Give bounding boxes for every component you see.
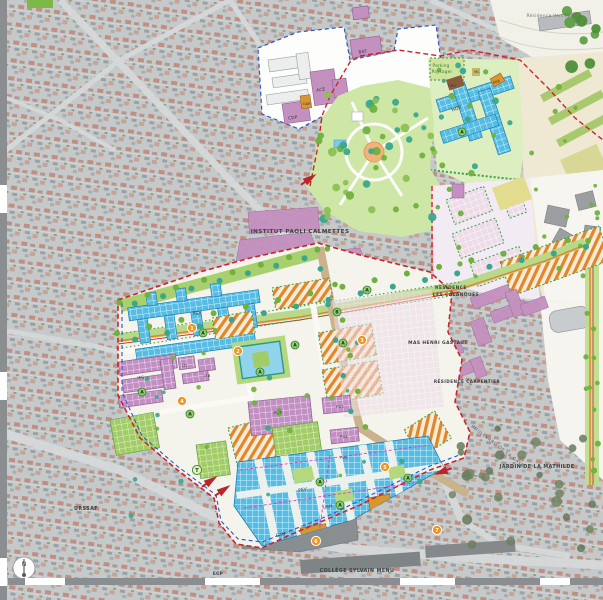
tree xyxy=(385,142,393,150)
tree xyxy=(534,188,538,192)
tree xyxy=(328,148,337,157)
tree xyxy=(404,271,410,277)
tree xyxy=(343,180,349,186)
tree xyxy=(346,191,354,199)
marker-letter-label-A-3: A xyxy=(365,288,369,294)
tree xyxy=(145,376,150,381)
tree xyxy=(273,263,279,269)
tree xyxy=(581,273,586,278)
marker-letter-label-A-11: A xyxy=(460,130,464,136)
tree xyxy=(368,148,374,154)
tree xyxy=(556,84,562,90)
tree xyxy=(392,99,399,106)
compass-north: N xyxy=(13,557,35,579)
tree xyxy=(380,134,386,140)
tree xyxy=(217,278,223,284)
tree xyxy=(155,413,160,418)
tree xyxy=(275,297,281,303)
label-bldg-chv: CHV xyxy=(448,84,456,88)
tree xyxy=(267,375,272,380)
tree xyxy=(589,203,594,208)
building-bat xyxy=(350,36,382,58)
tree xyxy=(204,445,209,450)
tree xyxy=(197,323,203,329)
tree xyxy=(595,210,601,216)
tree xyxy=(427,133,434,140)
tree xyxy=(188,286,194,292)
tree xyxy=(583,244,589,250)
tree xyxy=(591,457,595,461)
marker-letter-label-A-1: A xyxy=(293,343,297,349)
tree xyxy=(417,479,423,485)
tree xyxy=(332,184,340,192)
tree xyxy=(373,165,378,170)
tree xyxy=(363,180,371,188)
tree xyxy=(478,473,484,479)
label-bldg-pcp: PCP xyxy=(273,410,283,417)
tree xyxy=(563,513,570,520)
label-residence-les-calanques-2: LES CALANQUES xyxy=(433,292,479,298)
tree xyxy=(591,326,596,331)
tree xyxy=(346,347,351,352)
tree xyxy=(173,284,179,290)
tree xyxy=(201,351,205,355)
tree xyxy=(132,337,138,343)
tree xyxy=(588,500,596,508)
tree xyxy=(587,385,592,390)
tree xyxy=(592,408,596,412)
label-bldg-p05: P05 xyxy=(340,455,348,460)
map-svg: INSTITUT PAOLI CALMETTESRésidence Vert P… xyxy=(0,0,603,600)
marker-number-label-7: 7 xyxy=(435,528,439,534)
label-residence-vert-parc: Résidence Vert Parc xyxy=(526,12,575,19)
tree xyxy=(439,114,444,119)
tree xyxy=(162,390,166,394)
tree xyxy=(421,125,426,130)
tree xyxy=(491,133,496,138)
tree xyxy=(486,467,494,475)
tree xyxy=(266,493,270,497)
label-institut-paoli-calmettes: INSTITUT PAOLI CALMETTES xyxy=(251,229,350,235)
tree xyxy=(501,251,507,257)
tree xyxy=(456,245,461,250)
tree xyxy=(340,141,348,149)
tree xyxy=(449,491,456,498)
tree xyxy=(422,277,428,283)
tree xyxy=(406,136,412,142)
tree xyxy=(372,98,378,104)
tree xyxy=(436,205,441,210)
label-mas-henri-gastaut: MAS HENRI GASTAUT xyxy=(408,340,468,346)
label-bldg-p03: P03 xyxy=(336,404,344,409)
tree xyxy=(536,472,542,478)
tree xyxy=(447,187,452,192)
tree xyxy=(324,207,331,214)
tree xyxy=(324,91,331,98)
tree xyxy=(468,257,474,263)
tree xyxy=(213,328,218,333)
tree xyxy=(579,36,587,44)
label-parking-paysager-1: Parking xyxy=(433,63,450,68)
marker-letter-label-A-8: A xyxy=(318,480,322,486)
tree xyxy=(343,148,350,155)
marker-tram-label: T xyxy=(195,468,199,474)
marker-number-label-3: 3 xyxy=(360,338,364,344)
tree xyxy=(347,353,353,359)
tree xyxy=(164,330,170,336)
tree xyxy=(325,302,331,308)
tree xyxy=(556,266,561,271)
tree xyxy=(339,284,345,290)
tree xyxy=(474,274,478,278)
tree xyxy=(132,301,138,307)
tree xyxy=(458,210,464,216)
marker-number-label-4: 4 xyxy=(180,399,184,405)
tree xyxy=(302,255,308,261)
tree xyxy=(307,290,313,296)
tree xyxy=(591,468,597,474)
tree xyxy=(211,310,217,316)
tree xyxy=(390,284,396,290)
tree xyxy=(362,126,370,134)
tree xyxy=(449,93,455,99)
tree xyxy=(355,389,361,395)
label-urssaf: URSSAF xyxy=(74,506,98,512)
tree xyxy=(178,317,184,323)
tree xyxy=(314,247,320,253)
tree xyxy=(439,162,445,168)
tree xyxy=(155,427,159,431)
tree xyxy=(179,479,184,484)
tree xyxy=(369,105,377,113)
tree xyxy=(245,270,251,276)
tree xyxy=(551,496,562,507)
marker-letter-label-A-2: A xyxy=(341,341,345,347)
tree xyxy=(381,155,387,161)
tree xyxy=(565,237,571,243)
marker-letter-label-A-10: A xyxy=(406,476,410,482)
tree xyxy=(442,79,446,83)
tree xyxy=(171,356,175,360)
tree xyxy=(160,293,166,299)
tree xyxy=(196,385,201,390)
tree xyxy=(592,356,597,361)
tree xyxy=(413,112,418,117)
tree xyxy=(551,251,557,257)
tree xyxy=(585,238,591,244)
marker-letter-label-B-4: B xyxy=(335,310,339,316)
marker-number-label-2: 2 xyxy=(236,349,240,355)
label-bldg-ltl: LTL xyxy=(182,363,189,368)
tree xyxy=(565,215,570,220)
tree xyxy=(251,387,257,393)
tree xyxy=(403,175,410,182)
tree xyxy=(583,354,588,359)
marker-letter-label-A-6: A xyxy=(188,412,192,418)
tree xyxy=(293,304,299,310)
tree xyxy=(542,234,546,238)
tree xyxy=(593,184,597,188)
tree xyxy=(399,459,405,465)
tree xyxy=(362,460,366,464)
tree xyxy=(230,269,236,275)
tree xyxy=(325,246,331,252)
tree xyxy=(129,513,134,518)
tree xyxy=(472,163,478,169)
tree xyxy=(393,206,399,212)
tree xyxy=(457,261,462,266)
tree xyxy=(494,425,500,431)
tree xyxy=(401,124,410,133)
tree xyxy=(460,68,467,75)
tree xyxy=(464,469,475,480)
tree xyxy=(591,24,600,33)
label-bldg-ltb: LTB xyxy=(203,373,210,378)
label-jardin-de-la-mathilde: JARDIN DE LA MATHILDE xyxy=(499,464,575,470)
tree xyxy=(454,270,460,276)
tree xyxy=(494,493,503,502)
tree xyxy=(455,63,461,69)
tree xyxy=(252,400,257,405)
tree xyxy=(229,317,235,323)
tree xyxy=(261,310,267,316)
tree xyxy=(329,395,334,400)
tree xyxy=(462,515,472,525)
tree xyxy=(595,381,600,386)
tree xyxy=(114,330,120,336)
tree xyxy=(465,116,471,122)
label-bldg-gar: GAR xyxy=(303,102,311,106)
label-parking-paysager-2: Paysager xyxy=(432,69,453,74)
tree xyxy=(286,254,292,260)
tree xyxy=(506,537,515,546)
tree xyxy=(340,373,346,379)
tree xyxy=(486,264,492,270)
tree xyxy=(467,103,473,109)
tree xyxy=(318,266,324,272)
tree xyxy=(579,435,587,443)
tree xyxy=(243,304,249,310)
tree xyxy=(145,292,151,298)
marker-letter-label-A-5: A xyxy=(140,390,144,396)
tree xyxy=(430,146,435,151)
tree xyxy=(333,337,339,343)
tree xyxy=(287,427,293,433)
tree xyxy=(340,317,346,323)
label-bldg-mc: MC xyxy=(474,70,480,74)
tree xyxy=(395,127,401,133)
tree xyxy=(358,290,364,296)
tree xyxy=(258,262,264,268)
tree xyxy=(348,409,354,415)
tree xyxy=(595,216,599,220)
tree xyxy=(569,444,577,452)
tree xyxy=(573,106,577,110)
tree xyxy=(436,264,442,270)
tree xyxy=(555,489,564,498)
tree xyxy=(305,393,310,398)
tree xyxy=(585,58,596,69)
label-bldg-ifs: IFS xyxy=(137,375,145,381)
tree xyxy=(553,109,558,114)
masterplan-map: INSTITUT PAOLI CALMETTESRésidence Vert P… xyxy=(0,0,603,600)
tree xyxy=(368,206,375,213)
tree xyxy=(468,170,475,177)
marker-number-label-5: 5 xyxy=(383,465,387,471)
tree xyxy=(372,277,378,283)
tree xyxy=(492,97,499,104)
tree xyxy=(392,108,398,114)
tree xyxy=(555,480,564,489)
marker-letter-label-A-0: A xyxy=(201,331,205,337)
tree xyxy=(155,395,159,399)
tree xyxy=(483,69,488,74)
marker-letter-label-A-7: A xyxy=(258,370,262,376)
glass-building xyxy=(231,335,290,384)
tree xyxy=(413,203,419,209)
tree xyxy=(519,257,525,263)
label-ecp: ECP xyxy=(213,571,223,576)
tree xyxy=(586,525,594,533)
tree xyxy=(324,214,330,220)
tree xyxy=(576,15,588,27)
tree xyxy=(565,60,578,73)
tree xyxy=(529,151,534,156)
tree xyxy=(563,139,567,143)
tree xyxy=(507,120,512,125)
label-residence-carpentier: RÉSIDENCE CARPENTIER xyxy=(434,379,501,384)
marker-number-label-1: 1 xyxy=(190,326,194,332)
tree xyxy=(133,477,138,482)
tree xyxy=(363,424,369,430)
tree xyxy=(531,437,541,447)
marker-letter-label-A-9: A xyxy=(338,503,342,509)
tree xyxy=(419,153,425,159)
label-bldg-p04: P04 xyxy=(340,434,348,439)
tree xyxy=(332,282,338,288)
tree xyxy=(467,540,476,549)
tree xyxy=(577,544,585,552)
tree xyxy=(585,311,590,316)
marker-number-label-6: 6 xyxy=(314,539,318,545)
tree xyxy=(146,324,152,330)
tree xyxy=(595,441,601,447)
tree xyxy=(346,389,350,393)
tree xyxy=(338,474,342,478)
tree xyxy=(533,244,539,250)
tree xyxy=(116,300,122,306)
tree xyxy=(315,137,322,144)
tree xyxy=(578,244,583,249)
tree xyxy=(265,425,271,431)
tree xyxy=(458,449,465,456)
tree xyxy=(201,277,207,283)
tree xyxy=(428,213,436,221)
compass-n-label: N xyxy=(22,561,27,568)
label-bldg-psy: PSY xyxy=(192,311,201,317)
